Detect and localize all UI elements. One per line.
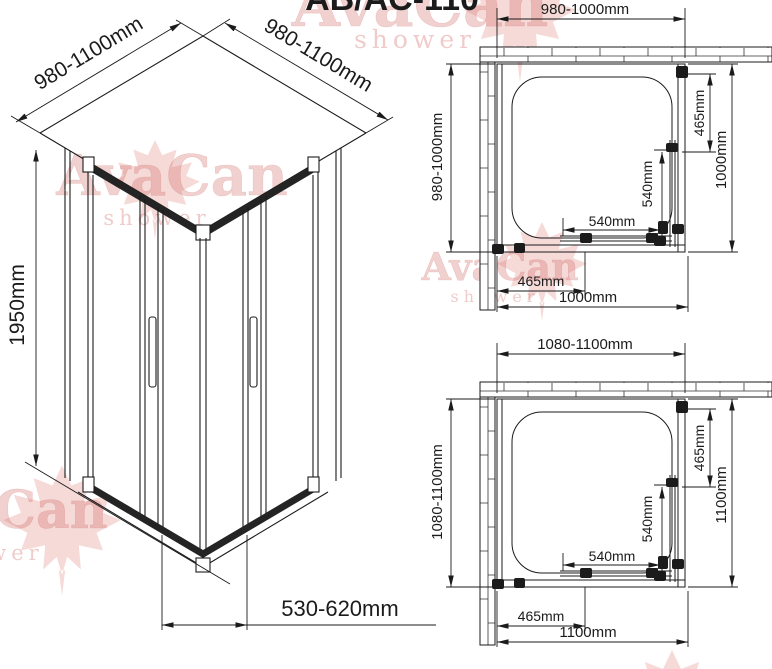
dim-label-door-right: 540mm (639, 161, 655, 208)
dim-label-door-bottom: 540mm (589, 548, 636, 564)
watermark-isometric: AvaCan shower (55, 140, 288, 239)
dim-label-fixed-bottom: 465mm (518, 273, 565, 289)
watermark-plan-top: AvaCan shower (420, 222, 586, 321)
track-corner-cap (196, 225, 210, 240)
dim-label-fixed-right: 465mm (691, 90, 707, 137)
dim-label-fixed-bottom: 465mm (518, 608, 565, 624)
dim-label-fixed-right: 465mm (691, 425, 707, 472)
dim-label-door-right: 540mm (639, 496, 655, 543)
dim-label-height: 1950mm (6, 264, 29, 346)
maple-leaf-icon (616, 650, 728, 669)
dim-label-depth-right: 1000mm (713, 131, 730, 189)
watermark-subtitle: shower (0, 541, 44, 565)
dim-label-door-opening: 530-620mm (281, 596, 398, 621)
watermark-bottom-left: AvaCan shower (0, 466, 121, 596)
dim-label-width-bottom: 1100mm (559, 624, 616, 641)
plan-view-bottom: 1080-1100mm 1080-1100mm 465mm 1100mm 540… (429, 336, 772, 647)
dim-label-width-top: 980-1000mm (541, 1, 629, 18)
dim-label-width-bottom: 1000mm (559, 289, 617, 306)
dim-label-depth-right: 1100mm (713, 466, 730, 523)
plan-view-top: 980-1000mm 980-1000mm 465mm 1000mm 540mm… (429, 1, 772, 312)
dim-label-depth-left: 980-1000mm (429, 113, 446, 201)
track-end-cap (83, 157, 94, 172)
page-title: AB/AC-110 (305, 0, 479, 18)
door-handle-left (149, 317, 156, 387)
track-end-cap (83, 477, 94, 492)
watermark-brand: AvaCan (55, 143, 288, 209)
track-end-cap (308, 157, 319, 172)
watermark-subtitle: shower (354, 25, 476, 54)
dim-label-width-top: 1080-1100mm (537, 336, 633, 353)
dim-label-depth-left: 1080-1100mm (429, 444, 446, 540)
drawing-canvas: AvaCan shower AvaCan shower AvaCan showe… (0, 0, 772, 669)
technical-drawing-page: AvaCan shower AvaCan shower AvaCan showe… (0, 0, 772, 669)
door-handle-right (250, 317, 257, 387)
isometric-view (40, 36, 366, 572)
dim-label-door-bottom: 540mm (589, 213, 636, 229)
track-end-cap (308, 477, 319, 492)
